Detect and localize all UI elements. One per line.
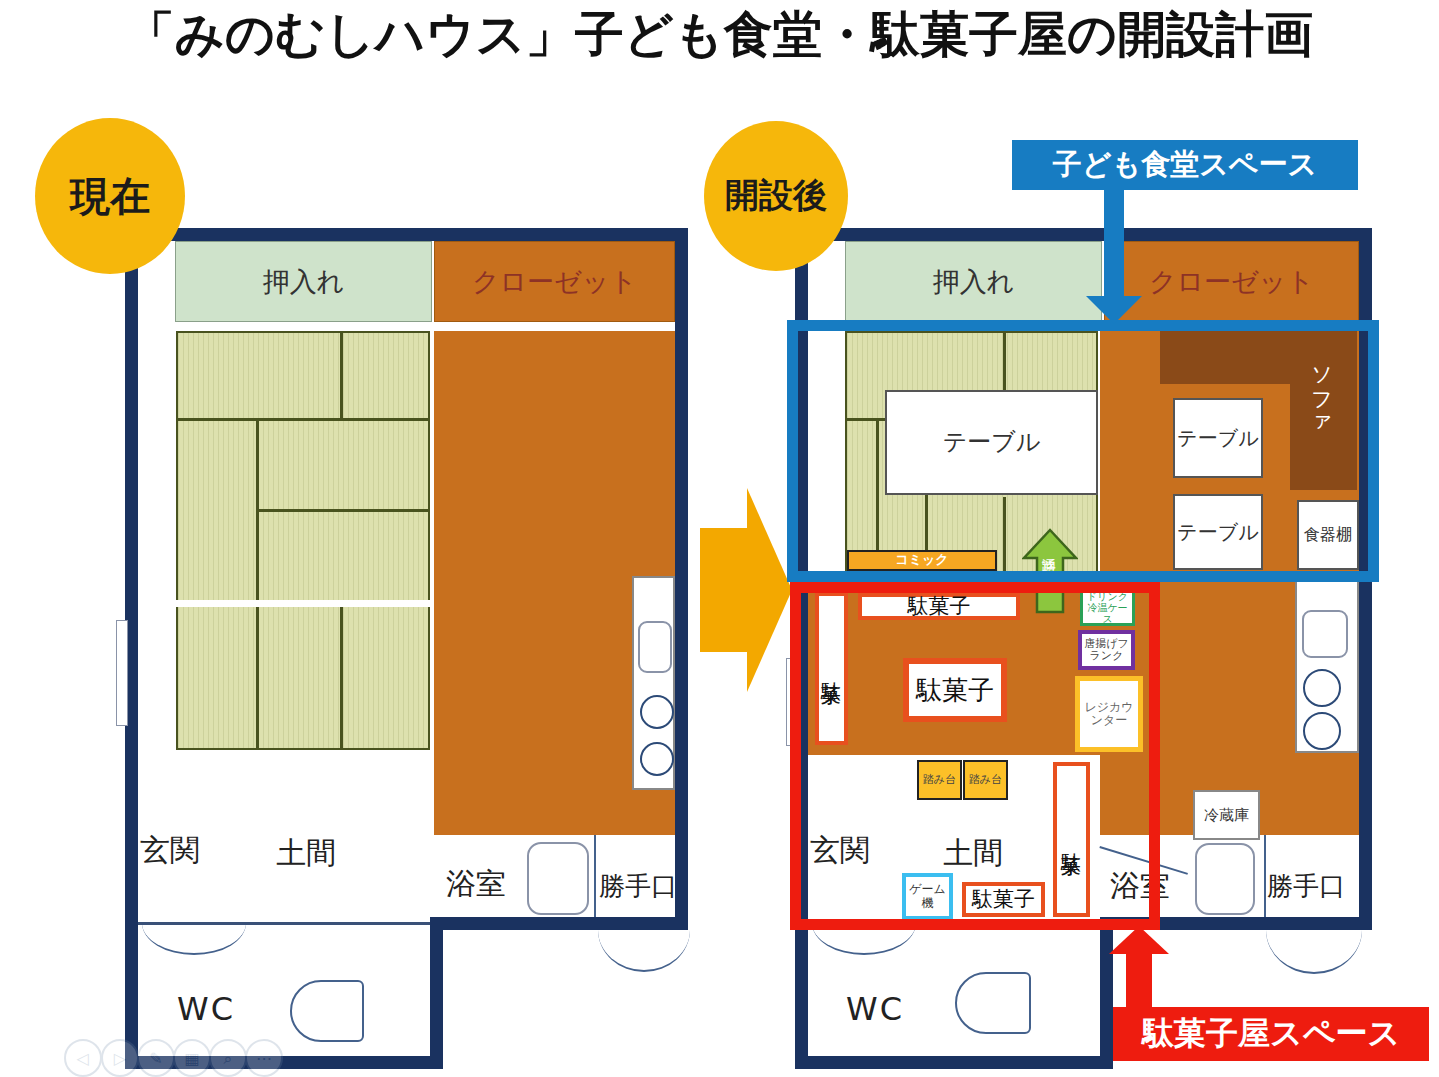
- right-wc-wall-bottom: [795, 1056, 1113, 1069]
- right-wc-label: WC: [846, 990, 904, 1028]
- right-oshiire-closet: 押入れ: [845, 241, 1102, 322]
- left-plan-wall-bottom: [430, 917, 688, 930]
- previous-button[interactable]: ◁: [64, 1039, 102, 1077]
- fridge: 冷蔵庫: [1193, 790, 1260, 840]
- left-tatami-floor: [176, 331, 430, 750]
- left-genkan-door-arc: [142, 923, 246, 955]
- left-oshiire-closet: 押入れ: [175, 241, 432, 322]
- current-badge: 現在: [35, 118, 185, 274]
- page-title: 「みのむしハウス」子ども食堂・駄菓子屋の開設計画: [0, 2, 1439, 68]
- left-window: [116, 620, 128, 726]
- left-genkan-label: 玄関: [140, 830, 200, 871]
- candy-callout-arrow-head: [1109, 926, 1169, 954]
- right-plan-wall-top: [795, 228, 1372, 241]
- left-bath-partition: [594, 835, 596, 917]
- pen-button[interactable]: ✎: [137, 1039, 175, 1077]
- slide: 「みのむしハウス」子ども食堂・駄菓子屋の開設計画 押入れ クローゼット 浴室 勝…: [0, 0, 1439, 1077]
- left-closet: クローゼット: [434, 241, 675, 322]
- left-backdoor-label: 勝手口: [599, 869, 677, 904]
- tatami-divider: [340, 607, 343, 750]
- viewer-toolbar: ◁ ▷ ✎ ▦ ⌕ ⋯: [60, 1037, 290, 1077]
- right-bathtub: [1195, 843, 1255, 915]
- tatami-divider: [256, 509, 430, 512]
- left-bath-label: 浴室: [446, 864, 506, 905]
- left-plan-wall-top: [125, 228, 688, 241]
- grid-button[interactable]: ▦: [173, 1039, 211, 1077]
- right-backdoor-label: 勝手口: [1267, 869, 1345, 904]
- tatami-divider: [340, 331, 343, 418]
- right-closet: クローゼット: [1104, 241, 1359, 322]
- right-kitchen-sink: [1302, 610, 1348, 658]
- left-backdoor-door-arc: [598, 930, 690, 972]
- left-bathtub: [527, 842, 589, 915]
- more-button[interactable]: ⋯: [245, 1039, 283, 1077]
- dining-space-frame: [787, 320, 1379, 582]
- right-stove-burner: [1303, 712, 1341, 750]
- transition-arrow-head: [747, 488, 792, 692]
- left-wc-wall-right: [430, 917, 443, 1069]
- left-doma-label: 土間: [276, 833, 336, 874]
- transition-arrow-stem: [700, 528, 747, 652]
- left-stove-burner: [640, 742, 674, 776]
- right-stove-burner: [1303, 669, 1341, 707]
- candy-space-callout: 駄菓子屋スペース: [1113, 1007, 1429, 1061]
- after-badge: 開設後: [704, 121, 848, 271]
- tatami-divider: [176, 418, 430, 421]
- next-button[interactable]: ▷: [101, 1039, 139, 1077]
- left-stove-burner: [640, 695, 674, 729]
- tatami-gap: [174, 600, 432, 607]
- left-plan-wall-right: [675, 228, 688, 930]
- right-backdoor-door-arc: [1266, 930, 1362, 974]
- right-toilet: [955, 972, 1031, 1034]
- dining-callout-arrow-head: [1086, 296, 1142, 324]
- dining-callout-arrow-stem: [1104, 190, 1124, 298]
- candy-callout-arrow-stem: [1126, 952, 1152, 1008]
- zoom-button[interactable]: ⌕: [209, 1039, 247, 1077]
- left-wc-label: WC: [177, 990, 235, 1028]
- left-kitchen-sink: [638, 621, 672, 673]
- dining-space-callout: 子ども食堂スペース: [1012, 140, 1358, 190]
- left-toilet: [290, 980, 364, 1042]
- right-bath-partition: [1264, 835, 1266, 917]
- tatami-divider: [256, 607, 259, 750]
- candy-space-frame: [790, 582, 1160, 930]
